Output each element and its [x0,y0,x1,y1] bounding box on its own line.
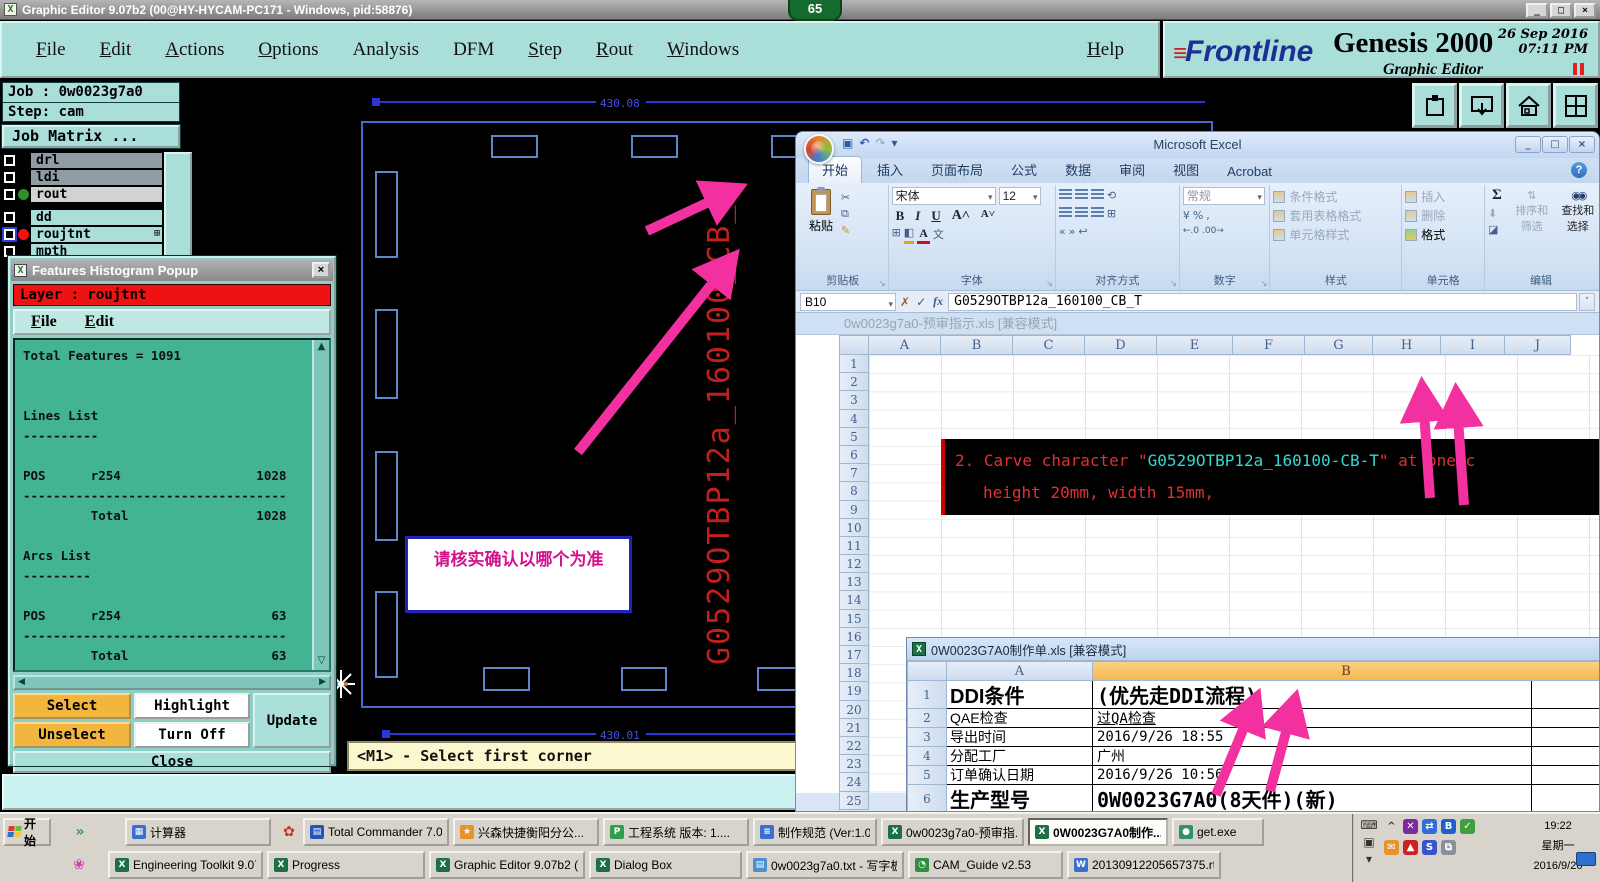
taskbar-button[interactable]: XProgress [267,851,425,879]
format-as-table-icon [1273,210,1285,222]
menu-step[interactable]: Step [528,39,562,61]
number-format-combo[interactable]: 常规 [1183,187,1265,205]
taskbar-button-icon: ▦ [132,825,146,839]
ribbon-tab-数据[interactable]: 数据 [1052,157,1104,183]
toolbar-screen-capture-icon[interactable] [1459,83,1504,128]
taskbar-button-icon: P [610,825,624,839]
ribbon-tabs: 开始插入页面布局公式数据审阅视图Acrobat? [796,158,1599,183]
network-icon[interactable]: ⧉ [1441,840,1456,855]
decrease-indent-icon[interactable]: « [1059,225,1066,238]
layer-name[interactable]: drl [31,153,162,168]
taskbar-button-label: 0w0023g7a0-预审指... [906,824,1017,841]
percent-icon[interactable]: % [1193,209,1203,222]
row-header-15[interactable]: 15 [839,610,869,628]
layer-row-roujtnt[interactable]: roujtnt⊞ [2,226,162,242]
sheet-cell-a5[interactable]: 订单确认日期 [947,766,1093,785]
instruction-note-box: 2. Carve character "G0529OTBP12a_160100-… [941,439,1600,515]
sheet-cell-a1[interactable]: DDI条件 [947,681,1093,709]
select-button[interactable]: Select [13,693,131,719]
bold-button[interactable]: B [892,208,909,224]
taskbar-button-label: 0W0023G7A0制作... [1053,824,1161,841]
menu-options[interactable]: Options [258,39,318,61]
select-all-corner[interactable] [839,335,869,355]
wrap-text-icon[interactable]: ↩ [1078,225,1087,238]
ribbon-tab-视图[interactable]: 视图 [1160,157,1212,183]
row-header-20[interactable]: 20 [839,701,869,719]
align-bottom-icon[interactable] [1091,189,1104,199]
keyboard-icon[interactable]: ⌨ [1360,818,1377,832]
office-button[interactable] [804,134,834,164]
layer-checkbox[interactable] [4,155,15,166]
sheet-cell-b2[interactable]: 过QA检查 [1093,709,1600,728]
sheet-cell-a6[interactable]: 生产型号 [947,785,1093,812]
increase-indent-icon[interactable]: » [1069,225,1076,238]
border-icon[interactable]: ⊞ [892,226,901,244]
align-right-icon[interactable] [1091,207,1104,217]
genesis-app-icon: X [4,3,17,16]
collapse-icon[interactable]: ^ [1384,819,1399,834]
font-size-combo[interactable]: 12 [999,187,1041,205]
clear-icon[interactable]: ◪ [1488,223,1506,236]
workbook-icon: X [912,642,926,656]
layer-status-dot [18,229,29,240]
embedded-rows: 1DDI条件(优先走DDI流程)2QAE检查过QA检查3导出时间2016/9/2… [907,681,1600,812]
taskbar-button-icon: X [1035,825,1049,839]
taskbar-button-icon: ★ [460,825,474,839]
font-group: 宋体 12 B I U A˄ A˅ ⊞ ◧ A 文 字体↘ [889,185,1056,290]
enter-icon[interactable]: ✓ [914,295,928,309]
column-headers: ABCDEFGHIJ [869,335,1571,355]
layer-checkbox[interactable] [4,189,15,200]
layer-checkbox[interactable] [4,212,15,223]
update-button[interactable]: Update [253,693,331,748]
ribbon: 粘贴 ✂ ⧉ ✎ 剪贴板↘ 宋体 12 B I [796,183,1599,291]
sheet-row-number[interactable]: 2 [907,709,947,728]
column-header-H[interactable]: H [1373,335,1441,355]
dim-top-label: 430.08 [600,97,640,110]
row-header-14[interactable]: 14 [839,591,869,609]
row-header-9[interactable]: 9 [839,501,869,519]
ribbon-tab-插入[interactable]: 插入 [864,157,916,183]
autosum-icon[interactable]: Σ [1488,187,1506,204]
display-icon[interactable] [1576,852,1596,866]
increase-decimal-icon[interactable]: ←.0 [1183,226,1199,236]
sheet-cell-a4[interactable]: 分配工厂 [947,747,1093,766]
embedded-title-text: 0W0023G7A0制作单.xls [兼容模式] [931,640,1126,659]
popup-title-text: Features Histogram Popup [32,263,307,278]
format-cells-icon [1405,229,1417,241]
format-cells-button[interactable]: 格式 [1405,225,1481,244]
ribbon-tab-审阅[interactable]: 审阅 [1106,157,1158,183]
menu-analysis[interactable]: Analysis [353,39,420,61]
taskbar-button-icon: ◔ [915,858,929,872]
sheet-cell-a2[interactable]: QAE检查 [947,709,1093,728]
fill-color-icon[interactable]: ◧ [904,226,914,244]
taskbar-button-label: Engineering Toolkit 9.07... [133,858,256,872]
row-header-6[interactable]: 6 [839,446,869,464]
inactive-workbook-title[interactable]: 0w0023g7a0-预审指示.xls [兼容模式] [796,313,1599,335]
row-header-2[interactable]: 2 [839,373,869,391]
taskbar-button[interactable]: ●get.exe [1172,818,1264,846]
product-subtitle: Graphic Editor [1383,61,1483,78]
help-icon[interactable]: ? [1571,162,1587,178]
menu-file[interactable]: File [36,39,66,61]
row-header-7[interactable]: 7 [839,464,869,482]
ribbon-tab-页面布局[interactable]: 页面布局 [918,157,996,183]
layer-row-drl[interactable]: drl [2,152,162,168]
canvas-note-box: 请核实确认以哪个为准 [405,536,632,613]
popup-menu-bar: FileEdit [13,309,331,335]
taskbar-button[interactable]: ▤0w0023g7a0.txt - 写字板 [746,851,904,879]
taskbar-button-icon: W [1074,858,1088,872]
row-header-21[interactable]: 21 [839,719,869,737]
toolbar-paste-board-icon[interactable] [1412,83,1457,128]
copy-icon[interactable]: ⧉ [841,207,850,221]
format-painter-icon[interactable]: ✎ [841,224,850,237]
job-label: Job : 0w0023g7a0 [2,82,180,102]
conditional-format-icon [1273,191,1285,203]
turn-off-button[interactable]: Turn Off [134,722,250,748]
fill-icon[interactable]: ⬇ [1488,207,1506,220]
taskbar-button-icon: X [274,858,288,872]
popup-report-text: Total Features = 1091 Lines List -------… [15,340,329,666]
excel-window-buttons: _ □ × [1515,136,1595,153]
taskbar-button[interactable]: ≡制作规范 (Ver:1.0.6) [753,818,877,846]
sheet-row-1: 1DDI条件(优先走DDI流程) [907,681,1600,709]
excel-title-bar[interactable]: ▣ ↶ ↷ ▾ Microsoft Excel _ □ × [796,132,1599,158]
taskbar-button[interactable]: ◔CAM_Guide v2.53 [908,851,1063,879]
name-box[interactable]: B10 [800,293,896,311]
layer-row-dd[interactable]: dd [2,209,162,225]
popup-close-button[interactable]: × [312,262,330,278]
taskbar-button[interactable]: XGraphic Editor 9.07b2 (0... [429,851,585,879]
scroll-down-icon[interactable]: ▽ [314,654,329,670]
row-header-3[interactable]: 3 [839,391,869,409]
scroll-right-icon[interactable]: ▶ [319,677,326,688]
sort-filter-icon: ⇅ [1512,189,1552,202]
excel-title-text: Microsoft Excel [796,137,1599,152]
popup-menu-file[interactable]: File [31,313,57,331]
row-header-4[interactable]: 4 [839,410,869,428]
layer-status-dot [18,189,29,200]
delete-cells-button[interactable]: 删除 [1405,206,1481,225]
column-header-B[interactable]: B [941,335,1013,355]
layer-scrollbar[interactable] [164,152,192,262]
font-name-combo[interactable]: 宋体 [892,187,996,205]
taskbar-button-icon: ● [1179,825,1193,839]
sheet-cell-b6[interactable]: 0W0023G7A0(8天件)(新) [1093,785,1600,812]
popup-menu-edit[interactable]: Edit [85,313,114,331]
shrink-font-icon[interactable]: A˅ [977,208,999,224]
sheet-cell-b1[interactable]: (优先走DDI流程) [1093,681,1600,709]
dialog-launcher-icon[interactable]: ↘ [1170,279,1177,288]
delete-cells-icon [1405,210,1417,222]
sheet-row-number[interactable]: 3 [907,728,947,747]
highlight-button[interactable]: Highlight [134,693,250,719]
formula-input[interactable]: G0529OTBP12a_160100_CB_T [948,293,1577,311]
taskbar-button-label: Graphic Editor 9.07b2 (0... [454,858,578,872]
embedded-select-all[interactable] [907,661,947,681]
layer-name[interactable]: rout [31,187,162,202]
merge-center-icon[interactable]: ⊞ [1107,207,1116,220]
sheet-row-number[interactable]: 4 [907,747,947,766]
grow-font-icon[interactable]: A˄ [948,208,974,224]
row-header-13[interactable]: 13 [839,573,869,591]
taskbar-button-icon: X [436,858,450,872]
shield-icon[interactable]: ✓ [1460,819,1475,834]
ribbon-tab-公式[interactable]: 公式 [998,157,1050,183]
layer-name[interactable]: dd [31,210,162,225]
underline-button[interactable]: U [927,208,944,224]
insert-cells-icon [1405,191,1417,203]
column-header-A[interactable]: A [869,335,941,355]
layer-checkbox[interactable] [4,229,15,240]
number-group: 常规 ¥ % , ←.0.00→ 数字↘ [1180,185,1271,290]
row-header-12[interactable]: 12 [839,555,869,573]
cut-icon[interactable]: ✂ [841,191,850,204]
popup-app-icon: X [14,264,27,277]
taskbar-button[interactable]: W20130912205657375.rtf... [1067,851,1221,879]
column-header-D[interactable]: D [1085,335,1157,355]
dialog-launcher-icon[interactable]: ↘ [879,279,886,288]
taskbar-button-label: CAM_Guide v2.53 [933,858,1031,872]
genesis-window-buttons: _ □ × [1526,3,1596,18]
row-header-11[interactable]: 11 [839,537,869,555]
frontline-logo: ≡Frontline [1173,35,1313,69]
column-header-E[interactable]: E [1157,335,1233,355]
excel-minimize-button[interactable]: _ [1515,136,1541,153]
row-header-25[interactable]: 25 [839,792,869,810]
column-header-b[interactable]: B [1093,661,1600,681]
taskbar-button[interactable]: ★兴森快捷衡阳分公... [453,818,599,846]
cells-group: 插入 删除 格式 单元格 [1402,185,1485,290]
maximize-button[interactable]: □ [1550,3,1572,18]
layer-name[interactable]: ldi [31,170,162,185]
browser-icon[interactable]: S [1422,840,1437,855]
sheet-cell-b3[interactable]: 2016/9/26 18:55 [1093,728,1600,747]
sort-filter-button[interactable]: ⇅ 排序和筛选 [1512,189,1552,236]
embedded-column-headers: A B [907,661,1600,681]
reader-icon[interactable]: ▲ [1403,840,1418,855]
row-header-10[interactable]: 10 [839,519,869,537]
taskbar-button-icon: ▤ [310,825,324,839]
embedded-workbook-window: X 0W0023G7A0制作单.xls [兼容模式] A B 1DDI条件(优先… [906,637,1600,812]
taskbar-button-label: 20130912205657375.rtf... [1092,858,1214,872]
format-as-table-button[interactable]: 套用表格格式 [1273,206,1398,225]
taskbar-button[interactable]: ▤Total Commander 7.0 ... [303,818,449,846]
popup-vscrollbar[interactable]: ▲ ▽ [312,340,329,670]
cell-styles-button[interactable]: 单元格样式 [1273,225,1398,244]
taskbar-button-label: 0w0023g7a0.txt - 写字板 [771,857,897,874]
bluetooth-icon[interactable]: B [1441,819,1456,834]
start-button[interactable]: 开始 [3,818,51,846]
taskbar-button-label: 计算器 [150,824,186,841]
comma-icon[interactable]: , [1206,209,1210,222]
styles-group: 条件格式 套用表格格式 单元格样式 样式 [1270,185,1402,290]
toolbar-split-window-icon[interactable] [1553,83,1598,128]
menu-help[interactable]: Help [1087,39,1124,61]
sheet-row-4: 4分配工厂广州 [907,747,1600,766]
align-top-icon[interactable] [1059,189,1072,199]
row-header-16[interactable]: 16 [839,628,869,646]
phonetic-icon[interactable]: 文 [933,226,944,244]
x-app-icon[interactable]: ✕ [1403,819,1418,834]
dialog-launcher-icon[interactable]: ↘ [1261,279,1268,288]
scroll-up-icon[interactable]: ▲ [314,340,329,356]
row-header-8[interactable]: 8 [839,482,869,500]
column-header-C[interactable]: C [1013,335,1085,355]
taskbar-button[interactable]: X0w0023g7a0-预审指... [881,818,1024,846]
menu-windows[interactable]: Windows [667,39,739,61]
sheet-cell-b4[interactable]: 广州 [1093,747,1600,766]
layer-name[interactable]: roujtnt⊞ [31,227,162,242]
layer-checkbox[interactable] [4,172,15,183]
quick-launch-icon-1[interactable]: » [71,823,89,841]
tray-dropdown-icon[interactable]: ▾ [1366,852,1372,866]
popup-title-bar[interactable]: X Features Histogram Popup × [11,259,333,281]
sheet-row-number[interactable]: 5 [907,766,947,785]
genesis-title-text: Graphic Editor 9.07b2 (00@HY-HYCAM-PC171… [22,3,412,17]
row-header-17[interactable]: 17 [839,646,869,664]
mail-icon[interactable]: ✉ [1384,840,1399,855]
formula-bar: B10 ✗ ✓ fx G0529OTBP12a_160100_CB_T ˅ [796,291,1599,313]
taskbar-button[interactable]: XEngineering Toolkit 9.07... [108,851,263,879]
toolbar-home-icon[interactable] [1506,83,1551,128]
cell-styles-icon [1273,229,1285,241]
taskbar-button-icon: X [596,858,610,872]
layer-checkbox[interactable] [4,246,15,257]
taskbar-button-label: get.exe [1197,825,1236,839]
taskbar-button-label: Progress [292,858,340,872]
align-middle-icon[interactable] [1075,189,1088,199]
insert-function-icon[interactable]: fx [930,294,946,309]
font-color-icon[interactable]: A [917,226,930,244]
popup-buttons: Select Highlight Update Unselect Turn Of… [13,693,331,773]
layer-row-rout[interactable]: rout [2,186,162,202]
column-header-J[interactable]: J [1505,335,1571,355]
popup-hscrollbar[interactable]: ◀ ▶ [13,675,331,690]
insert-cells-button[interactable]: 插入 [1405,187,1481,206]
scroll-left-icon[interactable]: ◀ [18,677,25,688]
quick-launch-icon-2[interactable]: ❀ [70,856,88,874]
sheet-row-6: 6生产型号0W0023G7A0(8天件)(新) [907,785,1600,812]
menu-edit[interactable]: Edit [100,39,132,61]
row-header-1[interactable]: 1 [839,355,869,373]
layer-expand-icon[interactable]: ⊞ [154,228,160,240]
taskbar-button[interactable]: X0W0023G7A0制作... [1028,818,1168,846]
paste-button[interactable]: 粘贴 [801,187,841,237]
taskbar-button[interactable]: P工程系统 版本: 1.... [603,818,749,846]
unselect-button[interactable]: Unselect [13,722,131,748]
orientation-icon[interactable]: ⟲ [1107,189,1116,202]
logo-bars-icon: ≡ [1173,40,1185,67]
dialog-launcher-icon[interactable]: ↘ [1046,279,1053,288]
taskbar-button-icon: ≡ [760,825,774,839]
overlay-badge: 65 [788,0,842,21]
taskbar-button-label: 制作规范 (Ver:1.0.6) [778,824,870,841]
align-center-icon[interactable] [1075,207,1088,217]
excel-close-button[interactable]: × [1569,136,1595,153]
menu-rout[interactable]: Rout [596,39,633,61]
row-header-19[interactable]: 19 [839,682,869,700]
remote-icon[interactable]: ⇄ [1422,819,1437,834]
row-header-18[interactable]: 18 [839,664,869,682]
sheet-row-number[interactable]: 6 [907,785,947,812]
job-matrix-button[interactable]: Job Matrix ... [2,125,180,148]
menu-dfm[interactable]: DFM [453,39,494,61]
row-header-22[interactable]: 22 [839,737,869,755]
minimize-button[interactable]: _ [1526,3,1548,18]
job-panel: Job : 0w0023g7a0 Step: cam [2,82,180,122]
close-button[interactable]: × [1574,3,1596,18]
taskbar-button[interactable]: ▦计算器 [125,818,271,846]
column-header-I[interactable]: I [1441,335,1505,355]
paste-icon [811,189,831,215]
taskbar-button-label: Total Commander 7.0 ... [328,825,442,839]
screen: 430.08 430.01 G0529OTBP12a_160100_CB_T 请… [0,0,1600,882]
column-header-G[interactable]: G [1305,335,1373,355]
taskbar-button-icon: ▤ [753,858,767,872]
row-headers: 1234567891011121314151617181920212223242… [839,355,869,810]
layer-row-ldi[interactable]: ldi [2,169,162,185]
sheet-row-2: 2QAE检查过QA检查 [907,709,1600,728]
popup-layer-bar: Layer : roujtnt [13,284,331,306]
alignment-group: ⟲ ⊞ «»↩ 对齐方式↘ [1056,185,1180,290]
genesis-menu-items: FileEditActionsOptionsAnalysisDFMStepRou… [36,39,739,61]
popup-report-area[interactable]: Total Features = 1091 Lines List -------… [13,338,331,672]
taskbar: 开始 » ▦计算器✿▤Total Commander 7.0 ...★兴森快捷衡… [0,812,1600,882]
find-select-button[interactable]: ◉◉ 查找和选择 [1558,189,1598,236]
board-vertical-text: G0529OTBP12a_160100_CB_T [702,145,742,665]
italic-button[interactable]: I [911,208,924,224]
decrease-decimal-icon[interactable]: .00→ [1202,226,1224,236]
align-left-icon[interactable] [1059,207,1072,217]
popup-close-action-button[interactable]: Close [13,751,331,773]
row-header-23[interactable]: 23 [839,755,869,773]
pause-icon[interactable] [1573,63,1584,75]
excel-maximize-button[interactable]: □ [1542,136,1568,153]
excel-window: ▣ ↶ ↷ ▾ Microsoft Excel _ □ × 开始插入页面布局公式… [795,131,1600,812]
column-header-F[interactable]: F [1233,335,1305,355]
taskbar-button-label: 工程系统 版本: 1.... [628,824,730,841]
ribbon-tab-Acrobat[interactable]: Acrobat [1214,161,1285,183]
column-header-a[interactable]: A [947,661,1093,681]
taskbar-button[interactable]: XDialog Box [589,851,742,879]
clock-display: 26 Sep 201607:11 PM [1498,27,1588,57]
tray-clock: 19:22 星期一 2016/9/26 [1516,814,1600,882]
sheet-cell-a3[interactable]: 导出时间 [947,728,1093,747]
sheet-row-number[interactable]: 1 [907,681,947,709]
right-toolbar [1412,83,1598,128]
formula-expand-icon[interactable]: ˅ [1579,293,1595,311]
cancel-icon[interactable]: ✗ [898,295,912,309]
menu-actions[interactable]: Actions [165,39,224,61]
system-tray: ⌨ ▣ ▾ ^✕⇄B✓ ✉▲S⧉ 19:22 星期一 2016/9/26 [1352,814,1600,882]
row-header-24[interactable]: 24 [839,773,869,791]
sheet-cell-b5[interactable]: 2016/9/26 10:56 [1093,766,1600,785]
windows-logo-icon [7,826,22,838]
editing-group: Σ ⬇ ◪ ⇅ 排序和筛选 ◉◉ 查找和选择 [1485,185,1597,290]
worksheet-grid[interactable]: ABCDEFGHIJ 12345678910111213141516171819… [796,335,1599,793]
conditional-format-button[interactable]: 条件格式 [1273,187,1398,206]
cascade-icon[interactable]: ▣ [1363,835,1374,849]
note-filename: G0529OTBP12a_160100-CB-T [1148,451,1379,470]
embedded-title-bar[interactable]: X 0W0023G7A0制作单.xls [兼容模式] [907,638,1600,661]
sheet-row-3: 3导出时间2016/9/26 18:55 [907,728,1600,747]
currency-icon[interactable]: ¥ [1183,209,1190,222]
row-header-5[interactable]: 5 [839,428,869,446]
mid-launch-icon[interactable]: ✿ [280,823,298,841]
